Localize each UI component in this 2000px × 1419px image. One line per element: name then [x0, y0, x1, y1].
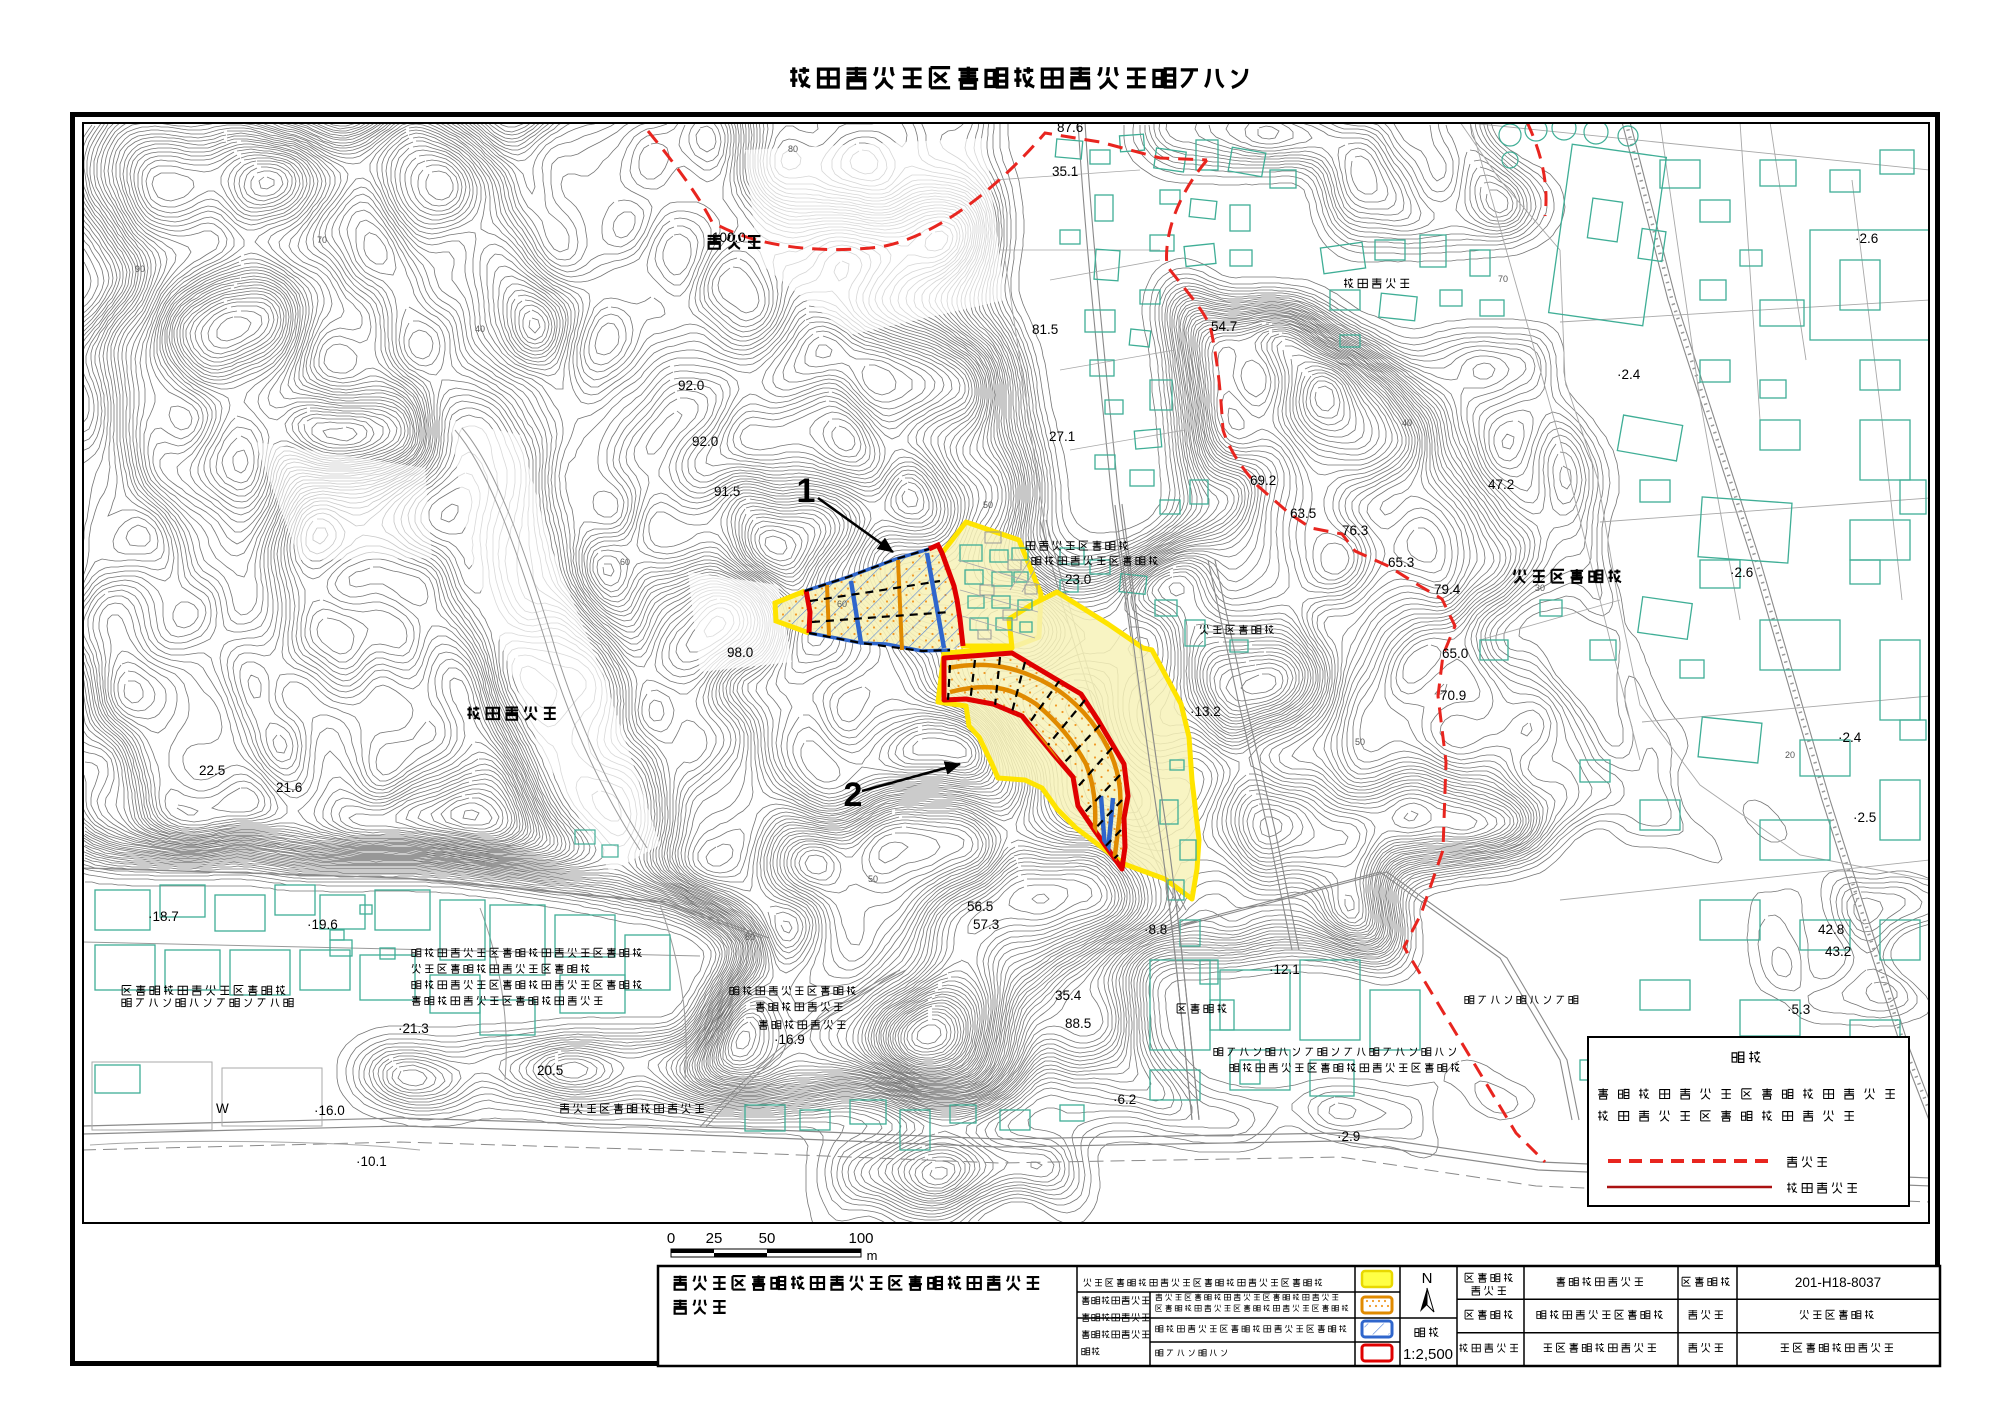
- svg-text:43.2: 43.2: [1825, 944, 1851, 959]
- svg-text:30: 30: [1535, 583, 1545, 593]
- svg-text:25: 25: [706, 1230, 723, 1247]
- svg-text:80: 80: [788, 144, 798, 154]
- svg-text:·16.9: ·16.9: [774, 1032, 805, 1047]
- svg-text:100.0: 100.0: [712, 230, 746, 245]
- svg-text:54.7: 54.7: [1211, 319, 1237, 334]
- svg-text:·19.6: ·19.6: [307, 917, 338, 932]
- svg-text:50: 50: [759, 1230, 776, 1247]
- svg-text:60: 60: [620, 557, 630, 567]
- svg-text:70: 70: [317, 235, 327, 245]
- svg-text:1:2,500: 1:2,500: [1403, 1346, 1453, 1363]
- svg-text:65.3: 65.3: [1388, 555, 1414, 570]
- svg-text:2: 2: [844, 776, 863, 814]
- svg-text:100: 100: [848, 1230, 873, 1247]
- svg-text:40: 40: [1402, 418, 1412, 428]
- svg-text:65.0: 65.0: [1442, 646, 1468, 661]
- svg-text:·21.3: ·21.3: [398, 1021, 429, 1036]
- svg-text:20: 20: [1785, 750, 1795, 760]
- svg-text:63.5: 63.5: [1290, 506, 1316, 521]
- svg-text:0: 0: [667, 1230, 675, 1247]
- svg-text:92.0: 92.0: [678, 378, 704, 393]
- svg-text:1: 1: [797, 472, 816, 510]
- svg-text:50: 50: [1355, 737, 1365, 747]
- svg-text:·2.4: ·2.4: [1617, 367, 1641, 382]
- svg-text:81.5: 81.5: [1032, 322, 1058, 337]
- svg-text:·18.7: ·18.7: [148, 909, 179, 924]
- svg-text:·2.9: ·2.9: [1337, 1129, 1360, 1144]
- svg-text:21.6: 21.6: [276, 780, 302, 795]
- svg-text:50: 50: [868, 874, 878, 884]
- svg-text:35.4: 35.4: [1055, 988, 1082, 1003]
- svg-text:76.3: 76.3: [1342, 523, 1368, 538]
- svg-text:·5.3: ·5.3: [1787, 1002, 1810, 1017]
- svg-text:40: 40: [475, 324, 485, 334]
- svg-text:56.5: 56.5: [967, 899, 993, 914]
- svg-text:·2.4: ·2.4: [1838, 730, 1862, 745]
- svg-text:·2.6: ·2.6: [1730, 565, 1753, 580]
- svg-text:·2.5: ·2.5: [1853, 810, 1876, 825]
- svg-text:70: 70: [1498, 274, 1508, 284]
- svg-text:80: 80: [745, 932, 755, 942]
- svg-text:·16.0: ·16.0: [314, 1103, 345, 1118]
- svg-text:27.1: 27.1: [1049, 429, 1075, 444]
- svg-text:98.0: 98.0: [727, 645, 753, 660]
- svg-text:·12.1: ·12.1: [1269, 962, 1300, 977]
- svg-text:·8.8: ·8.8: [1144, 922, 1167, 937]
- svg-text:·10.1: ·10.1: [356, 1154, 387, 1169]
- svg-text:22.5: 22.5: [199, 763, 225, 778]
- svg-text:42.8: 42.8: [1818, 922, 1844, 937]
- svg-text:60: 60: [837, 599, 847, 609]
- svg-text:·6.2: ·6.2: [1113, 1092, 1136, 1107]
- svg-text:35.1: 35.1: [1052, 164, 1078, 179]
- svg-text:70.9: 70.9: [1440, 688, 1466, 703]
- svg-text:·13.2: ·13.2: [1190, 704, 1221, 719]
- svg-text:23.0: 23.0: [1065, 572, 1091, 587]
- svg-text:91.5: 91.5: [714, 484, 740, 499]
- svg-text:50: 50: [983, 500, 993, 510]
- svg-text:69.2: 69.2: [1250, 473, 1276, 488]
- svg-text:92.0: 92.0: [692, 434, 718, 449]
- svg-text:N: N: [1422, 1270, 1433, 1287]
- svg-text:57.3: 57.3: [973, 917, 999, 932]
- svg-text:201-H18-8037: 201-H18-8037: [1795, 1275, 1881, 1290]
- svg-text:m: m: [867, 1248, 878, 1263]
- svg-text:88.5: 88.5: [1065, 1016, 1091, 1031]
- svg-text:·2.6: ·2.6: [1855, 231, 1878, 246]
- svg-text:W: W: [216, 1101, 229, 1116]
- svg-text:47.2: 47.2: [1488, 477, 1514, 492]
- svg-text:90: 90: [135, 264, 145, 274]
- svg-text:20.5: 20.5: [537, 1063, 563, 1078]
- svg-text:79.4: 79.4: [1434, 582, 1461, 597]
